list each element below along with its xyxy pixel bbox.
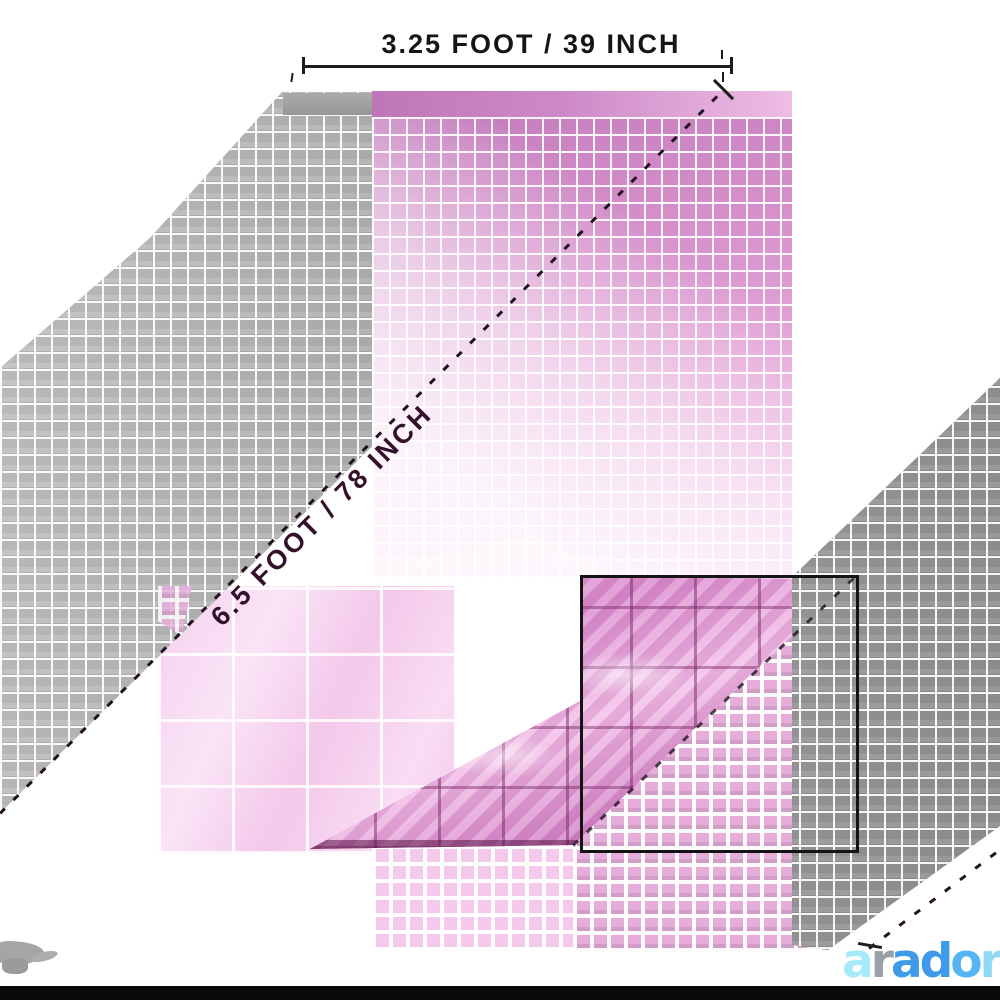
brand-logo-letter: d bbox=[920, 934, 951, 989]
product-image: 3.25 FOOT / 39 INCH 6.5 FOOT / 78 INCH a… bbox=[0, 0, 1000, 1000]
width-dimension-subtick-left bbox=[290, 73, 293, 82]
brand-logo-letter: a bbox=[842, 934, 871, 989]
brand-logo-letter: o bbox=[950, 934, 979, 989]
brand-logo-letter: r bbox=[871, 934, 891, 989]
width-dimension-tick-right bbox=[730, 57, 733, 74]
width-dimension-subtick-right2 bbox=[722, 72, 724, 82]
brand-logo-letter: r bbox=[980, 934, 1000, 989]
width-dimension-subtick-right bbox=[721, 50, 723, 59]
brand-logo-letter: a bbox=[891, 934, 920, 989]
brand-logo: arador bbox=[842, 938, 1000, 985]
gray-foil-blob-small bbox=[2, 958, 28, 974]
gray-curtain-header-strip bbox=[283, 93, 372, 115]
width-dimension-label: 3.25 FOOT / 39 INCH bbox=[331, 29, 731, 60]
width-dimension-line bbox=[303, 65, 732, 68]
bottom-black-bar bbox=[0, 986, 1000, 1000]
pink-curtain-panel bbox=[372, 92, 792, 578]
width-dimension-tick-left bbox=[302, 57, 305, 74]
inset-photo-frame bbox=[580, 575, 859, 853]
